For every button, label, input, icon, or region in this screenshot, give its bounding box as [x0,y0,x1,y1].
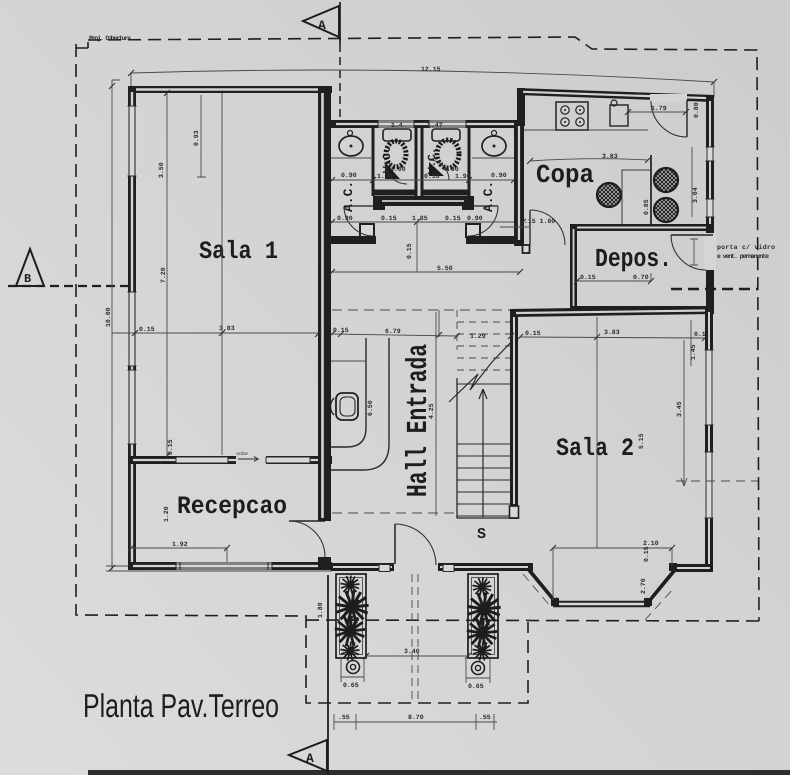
svg-text:3.83: 3.83 [604,329,620,336]
svg-text:0.70: 0.70 [633,274,649,281]
svg-text:A.C.: A.C. [481,181,496,212]
svg-text:Hall Entrada: Hall Entrada [402,344,435,497]
svg-text:A.C.: A.C. [341,181,356,212]
svg-text:6.79: 6.79 [385,328,401,335]
svg-text:porta c/ vidro: porta c/ vidro [717,244,775,251]
svg-text:8.70: 8.70 [408,714,424,721]
svg-text:S: S [477,526,486,543]
svg-text:0.65: 0.65 [468,683,484,690]
svg-text:1.20: 1.20 [163,506,170,522]
svg-text:4.25: 4.25 [428,403,435,419]
svg-text:0.15: 0.15 [381,215,397,222]
svg-text:3.40: 3.40 [404,648,420,655]
svg-text:4.00: 4.00 [390,166,406,173]
svg-text:0.15: 0.15 [406,243,413,259]
svg-text:B: B [24,272,31,286]
svg-text:3.45: 3.45 [676,401,683,417]
svg-text:.55: .55 [479,714,491,721]
svg-text:0.90: 0.90 [467,215,483,222]
svg-text:5.15: 5.15 [638,433,645,449]
svg-text:0.80: 0.80 [693,102,700,118]
svg-text:6.50: 6.50 [367,400,374,416]
svg-text:0.90: 0.90 [341,172,357,179]
svg-text:1.90: 1.90 [377,173,393,180]
svg-text:1.92: 1.92 [172,541,188,548]
svg-text:2.10: 2.10 [643,540,659,547]
svg-text:10.00: 10.00 [105,307,112,327]
svg-text:0.15: 0.15 [167,439,174,455]
svg-text:1.4: 1.4 [391,122,403,129]
svg-text:3.50: 3.50 [158,162,165,178]
svg-text:7.20: 7.20 [160,267,167,283]
svg-text:12.15: 12.15 [421,66,441,73]
svg-text:1.80: 1.80 [317,602,324,618]
svg-text:0.93: 0.93 [193,130,200,146]
svg-text:0.10: 0.10 [424,173,440,180]
svg-text:1.47: 1.47 [427,122,443,129]
svg-text:sobe: sobe [236,451,248,457]
svg-text:1.90: 1.90 [455,173,471,180]
svg-text:0.15: 0.15 [333,327,349,334]
svg-text:1.29: 1.29 [470,333,486,340]
svg-text:0.85: 0.85 [643,199,650,215]
svg-text:3.83: 3.83 [602,153,618,160]
svg-text:Planta Pav.Terreo: Planta Pav.Terreo [83,687,279,724]
svg-text:4.00: 4.00 [443,166,459,173]
svg-text:1.85: 1.85 [412,215,428,222]
svg-text:0.15: 0.15 [580,274,596,281]
svg-text:Copa: Copa [536,160,594,190]
svg-text:0.65: 0.65 [343,682,359,689]
svg-text:e vent. permanente: e vent. permanente [717,253,769,260]
svg-text:Sala 2: Sala 2 [556,434,634,463]
svg-text:3.83: 3.83 [219,325,235,332]
svg-text:1.79: 1.79 [651,105,667,112]
svg-text:A: A [306,751,314,766]
svg-text:.15 1.00: .15 1.00 [524,218,555,225]
svg-text:.55: .55 [338,714,350,721]
svg-text:Sala 1: Sala 1 [199,237,278,266]
svg-text:0.90: 0.90 [491,172,507,179]
svg-text:A: A [318,18,326,33]
svg-text:3.04: 3.04 [692,187,699,203]
svg-text:5.50: 5.50 [437,265,453,272]
svg-text:0.15: 0.15 [525,330,541,337]
svg-text:0.15: 0.15 [445,215,461,222]
svg-text:1.45: 1.45 [690,344,697,360]
svg-text:Proj. Cobertura: Proj. Cobertura [89,35,131,42]
svg-text:Recepcao: Recepcao [177,492,287,521]
svg-text:2.70: 2.70 [640,578,647,594]
svg-text:0.15: 0.15 [139,326,155,333]
svg-text:Depos.: Depos. [595,244,672,274]
svg-text:0.15: 0.15 [643,546,650,562]
svg-text:0.90: 0.90 [337,215,353,222]
